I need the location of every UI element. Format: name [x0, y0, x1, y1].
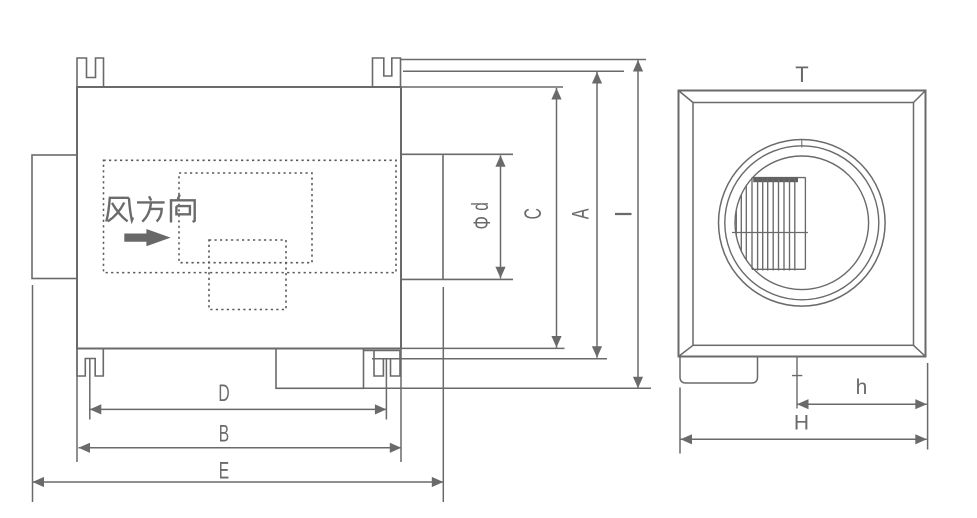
svg-text:T: T — [795, 62, 808, 87]
svg-text:C: C — [521, 208, 547, 219]
svg-text:H: H — [794, 412, 809, 435]
svg-text:h: h — [856, 376, 868, 399]
svg-text:D: D — [218, 381, 229, 407]
svg-text:E: E — [219, 458, 229, 484]
svg-text:A: A — [568, 208, 594, 219]
svg-text:B: B — [219, 421, 229, 447]
svg-text:d: d — [468, 202, 494, 211]
svg-text:Φ: Φ — [469, 216, 496, 229]
svg-text:I: I — [610, 211, 637, 218]
